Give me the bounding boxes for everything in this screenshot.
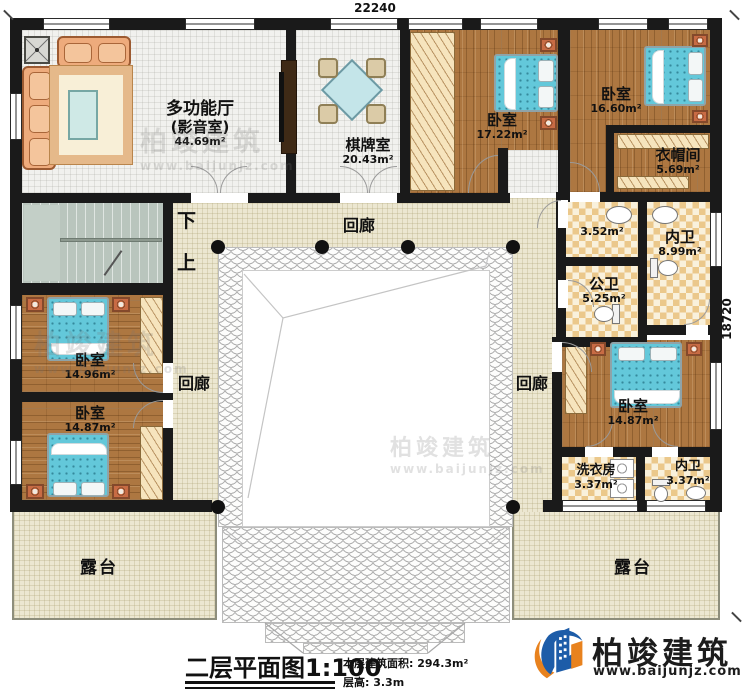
wall-vanity-publicbath — [556, 257, 647, 266]
wall-cloak-top — [606, 125, 710, 133]
small-bath-label: 内卫 3.37m² — [656, 460, 720, 487]
door-gap-bedroom-e — [552, 342, 562, 372]
wall-left-bedrooms-between — [10, 392, 173, 402]
coffee-table — [68, 90, 98, 140]
nightstand — [112, 297, 130, 312]
window-top-3 — [330, 18, 398, 30]
bedroom-a-wardrobe — [410, 32, 455, 191]
toilet — [658, 260, 678, 276]
wall-top-rooms-b — [248, 193, 340, 203]
sink — [606, 206, 632, 224]
dimension-top: 22240 — [335, 1, 415, 15]
dim-tick — [3, 10, 14, 21]
stair-rail — [60, 238, 162, 242]
public-bath-label: 公卫 5.25m² — [572, 276, 636, 305]
toilet — [654, 486, 668, 502]
corridor-right-label: 回廊 — [516, 370, 548, 394]
column — [401, 240, 415, 254]
watermark: 柏竣建筑 www.baijunjz.com — [34, 323, 189, 376]
stairs-up-label: 上 — [177, 248, 196, 275]
column — [506, 240, 520, 254]
window-top-4 — [408, 18, 463, 30]
chair-2 — [366, 58, 386, 78]
chair-1 — [318, 58, 338, 78]
brand-logo-icon — [532, 624, 588, 682]
dim-tick — [729, 10, 740, 21]
nightstand — [112, 484, 130, 499]
window-left-2 — [10, 305, 22, 360]
door-gap-small-bath — [652, 447, 678, 457]
wall-cloak-left — [606, 133, 614, 192]
watermark: 柏竣建筑 www.baijunjz.com — [140, 120, 295, 173]
nightstand — [540, 38, 557, 52]
column — [506, 500, 520, 514]
bedroom-e-label: 卧室 14.87m² — [583, 398, 683, 427]
bedroom-d-wardrobe — [140, 426, 163, 500]
window-top-5 — [480, 18, 538, 30]
porch-hip-lines — [222, 508, 510, 654]
toilet-tank — [650, 258, 658, 278]
master-bath-label: 内卫 8.99m² — [648, 229, 712, 258]
column — [211, 240, 225, 254]
stairs-down-label: 下 — [177, 206, 196, 233]
door-gap-bedroom-b — [570, 192, 600, 202]
window-top-2 — [185, 18, 255, 30]
wall-top-rooms-c — [397, 193, 510, 203]
floor-height-text: 层高: 3.3m — [343, 674, 404, 690]
bedroom-b-label: 卧室 16.60m² — [566, 86, 666, 115]
chair-4 — [366, 104, 386, 124]
watermark: 柏竣建筑 www.baijunjz.com — [390, 430, 545, 476]
courtyard-roof-lines — [242, 250, 490, 527]
window-top-6 — [598, 18, 648, 30]
wall-stairs-bottom — [10, 283, 173, 295]
column — [211, 500, 225, 514]
dim-tick — [731, 612, 742, 623]
chair-3 — [318, 104, 338, 124]
bed-a — [494, 54, 558, 112]
column — [315, 240, 329, 254]
window-right-2 — [710, 362, 722, 430]
door-gap-master-bath — [686, 325, 708, 335]
speaker-icon — [24, 36, 50, 64]
chess-room-label: 棋牌室 20.43m² — [318, 137, 418, 166]
door-gap-bedroom-d — [163, 400, 173, 428]
window-bottom-2 — [646, 500, 706, 512]
toilet — [594, 306, 614, 322]
laundry-label: 洗衣房 3.37m² — [564, 464, 628, 491]
wall-bedrooms-ab — [558, 30, 570, 202]
title-underline — [185, 681, 335, 684]
vanity-label: 3.52m² — [570, 226, 634, 238]
wall-vanity-masterbath — [638, 202, 647, 257]
bedroom-d-label: 卧室 14.87m² — [40, 405, 140, 434]
nightstand — [26, 297, 44, 312]
wall-top-rooms-a — [10, 193, 191, 203]
window-bottom-1 — [562, 500, 638, 512]
door-gap-public-bath — [558, 280, 568, 308]
window-left-3 — [10, 440, 22, 485]
window-top-1 — [43, 18, 110, 30]
dimension-right: 18720 — [720, 298, 734, 340]
sofa-top — [57, 36, 131, 68]
cloakroom-closet-bottom — [617, 176, 689, 189]
floor-plan: 露台 露台 — [0, 0, 750, 694]
floor-area-text: 本层建筑面积: 294.3m² — [343, 655, 468, 671]
nightstand — [26, 484, 44, 499]
wall-laundry-bath — [636, 457, 645, 500]
wall-bedroom-a-entry — [498, 148, 508, 198]
terrace-right-label: 露台 — [614, 553, 652, 578]
terrace-left-label: 露台 — [80, 553, 118, 578]
window-top-7 — [668, 18, 708, 30]
nightstand — [590, 342, 606, 356]
corridor-top-label: 回廊 — [343, 212, 375, 236]
stair-landing — [24, 205, 60, 281]
door-gap-media — [191, 193, 248, 203]
nightstand — [692, 110, 708, 123]
title-underline-2 — [185, 687, 335, 689]
door-gap-chess — [340, 193, 397, 203]
brand-site: www.baijunjz.com — [593, 664, 742, 679]
window-left-1 — [10, 93, 22, 140]
nightstand — [692, 34, 708, 47]
bedroom-a-label: 卧室 17.22m² — [452, 112, 552, 141]
bedroom-a-vestibule — [508, 150, 558, 193]
sink — [652, 206, 678, 224]
wall-chess-bedroom — [400, 30, 410, 197]
sink — [686, 486, 706, 500]
cloakroom-label: 衣帽间 5.69m² — [628, 147, 728, 176]
bed-d — [47, 433, 109, 497]
door-gap-laundry — [585, 447, 613, 457]
wall-outer-bottom-left — [10, 500, 212, 512]
nightstand — [686, 342, 702, 356]
wall-bedroom-e-bottom — [552, 447, 722, 457]
